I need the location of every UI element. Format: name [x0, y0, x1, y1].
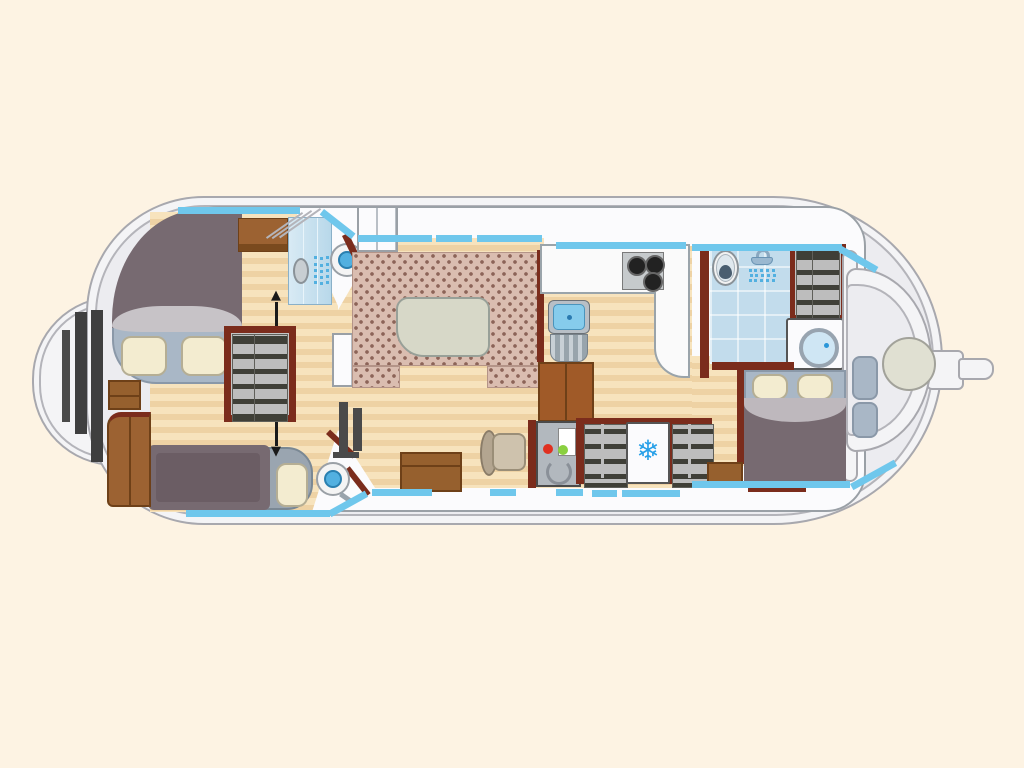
rear-shower-spray-2 [750, 274, 776, 277]
ladder-bar-2 [353, 408, 362, 451]
sink-faucet-dot [567, 315, 572, 320]
wall-console-left [528, 420, 536, 488]
galley-sink-cabinet [538, 362, 594, 422]
window-top-front [178, 207, 300, 214]
washing-machine-door [799, 328, 839, 368]
single-bed-pillow [276, 463, 308, 507]
tiller-handle [958, 358, 994, 380]
bow-interior-steps [108, 380, 141, 410]
front-shower-spray-icon-1 [314, 256, 317, 284]
front-shower-spray-icon-2 [320, 257, 323, 285]
front-shower-panel-seam2 [317, 218, 318, 304]
window-bottom-mid-4 [592, 490, 617, 497]
window-bottom-mid-5 [622, 490, 680, 497]
toilet [712, 250, 739, 286]
wall-galley-bathroom [700, 246, 709, 378]
boat-floor-plan: ▲ ▼ [0, 0, 1024, 768]
bow-bed-sheet-fold [112, 306, 242, 332]
window-top-salon-1 [358, 235, 432, 242]
galley-counter-return [654, 292, 690, 378]
window-bottom-front [186, 510, 330, 517]
steering-console [536, 421, 581, 487]
window-bottom-mid-1 [372, 489, 432, 496]
washing-machine [786, 318, 844, 370]
bow-step-bar-3 [91, 310, 103, 462]
stove-burner-1 [627, 256, 647, 276]
salon-table [396, 297, 490, 357]
galley-sink-basin [553, 304, 585, 330]
bow-step-bar-1 [62, 330, 70, 422]
wall-corridor-bed [737, 370, 744, 464]
rear-wardrobe [790, 244, 846, 320]
salon-seating-right-arm [487, 366, 540, 388]
wall-bathroom-bed [712, 362, 794, 370]
window-top-galley [556, 242, 686, 249]
window-bottom-mid-3 [556, 489, 583, 496]
galley-cabinet-band: ❄ [576, 418, 712, 484]
companionway-steps-top [357, 206, 398, 252]
front-shower-head-icon [293, 258, 309, 284]
single-bed-duvet-inner [156, 453, 260, 502]
stern-round-table [882, 337, 936, 391]
storage-chest-lid-line [402, 465, 460, 467]
galley-counter-top [540, 244, 690, 294]
rear-shower-head-icon [751, 257, 773, 265]
salon-seating-left-arm [352, 366, 400, 388]
window-bottom-rear [692, 481, 850, 488]
passage-arrow-up: ▲ [262, 290, 290, 326]
arrow-down-shaft [275, 422, 278, 446]
front-shower-spray-icon-3 [326, 256, 329, 284]
shelf-unit-left [584, 424, 628, 488]
rear-shower-spray-3 [749, 279, 775, 282]
arrow-down-icon: ▼ [271, 446, 281, 458]
console-wheel [546, 459, 572, 485]
helm-chair-seat [492, 433, 526, 471]
rear-bed-pillow-1 [752, 374, 788, 400]
stern-cushion-2 [852, 402, 878, 438]
shelf-unit-right-divider [688, 424, 691, 478]
shelf-unit-left-divider [601, 424, 604, 478]
bow-interior-step-seam [110, 395, 139, 397]
window-bottom-mid-2 [490, 489, 516, 496]
passage-arrow-down: ▼ [262, 422, 290, 460]
window-top-salon-3 [477, 235, 542, 242]
front-cabin-wardrobe [224, 326, 296, 422]
arrow-up-shaft [275, 302, 278, 326]
refrigerator: ❄ [626, 422, 670, 484]
washing-machine-dot [824, 343, 829, 348]
bow-bed-pillow-1 [121, 336, 167, 376]
sink-cabinet-seam [565, 364, 567, 420]
mid-washbasin-water [324, 470, 342, 488]
ladder-bar-1 [339, 402, 348, 454]
rear-shower-spray-1 [749, 269, 775, 272]
console-green-button [558, 445, 568, 455]
arrow-up-icon: ▲ [271, 290, 281, 302]
toilet-opening [719, 265, 732, 279]
snowflake-icon: ❄ [636, 434, 659, 467]
storage-chest [400, 452, 462, 492]
rear-wardrobe-shelf-right [812, 250, 840, 324]
single-bed-duvet [148, 445, 270, 510]
corner-wardrobe-seam [129, 417, 131, 505]
window-top-rear [692, 244, 842, 251]
galley-drainboard [550, 334, 588, 362]
bow-bed-pillow-2 [181, 336, 227, 376]
rear-bed-pillow-2 [797, 374, 833, 400]
front-cabin-wardrobe-shelf-right [254, 334, 288, 422]
galley-stove [622, 252, 664, 290]
ladder-foot [333, 452, 359, 458]
bow-step-bar-2 [75, 312, 87, 434]
console-red-button [543, 444, 553, 454]
stern-cushion-1 [852, 356, 878, 400]
window-top-salon-2 [436, 235, 472, 242]
stove-burner-3 [643, 272, 663, 292]
corner-wardrobe [107, 412, 151, 507]
